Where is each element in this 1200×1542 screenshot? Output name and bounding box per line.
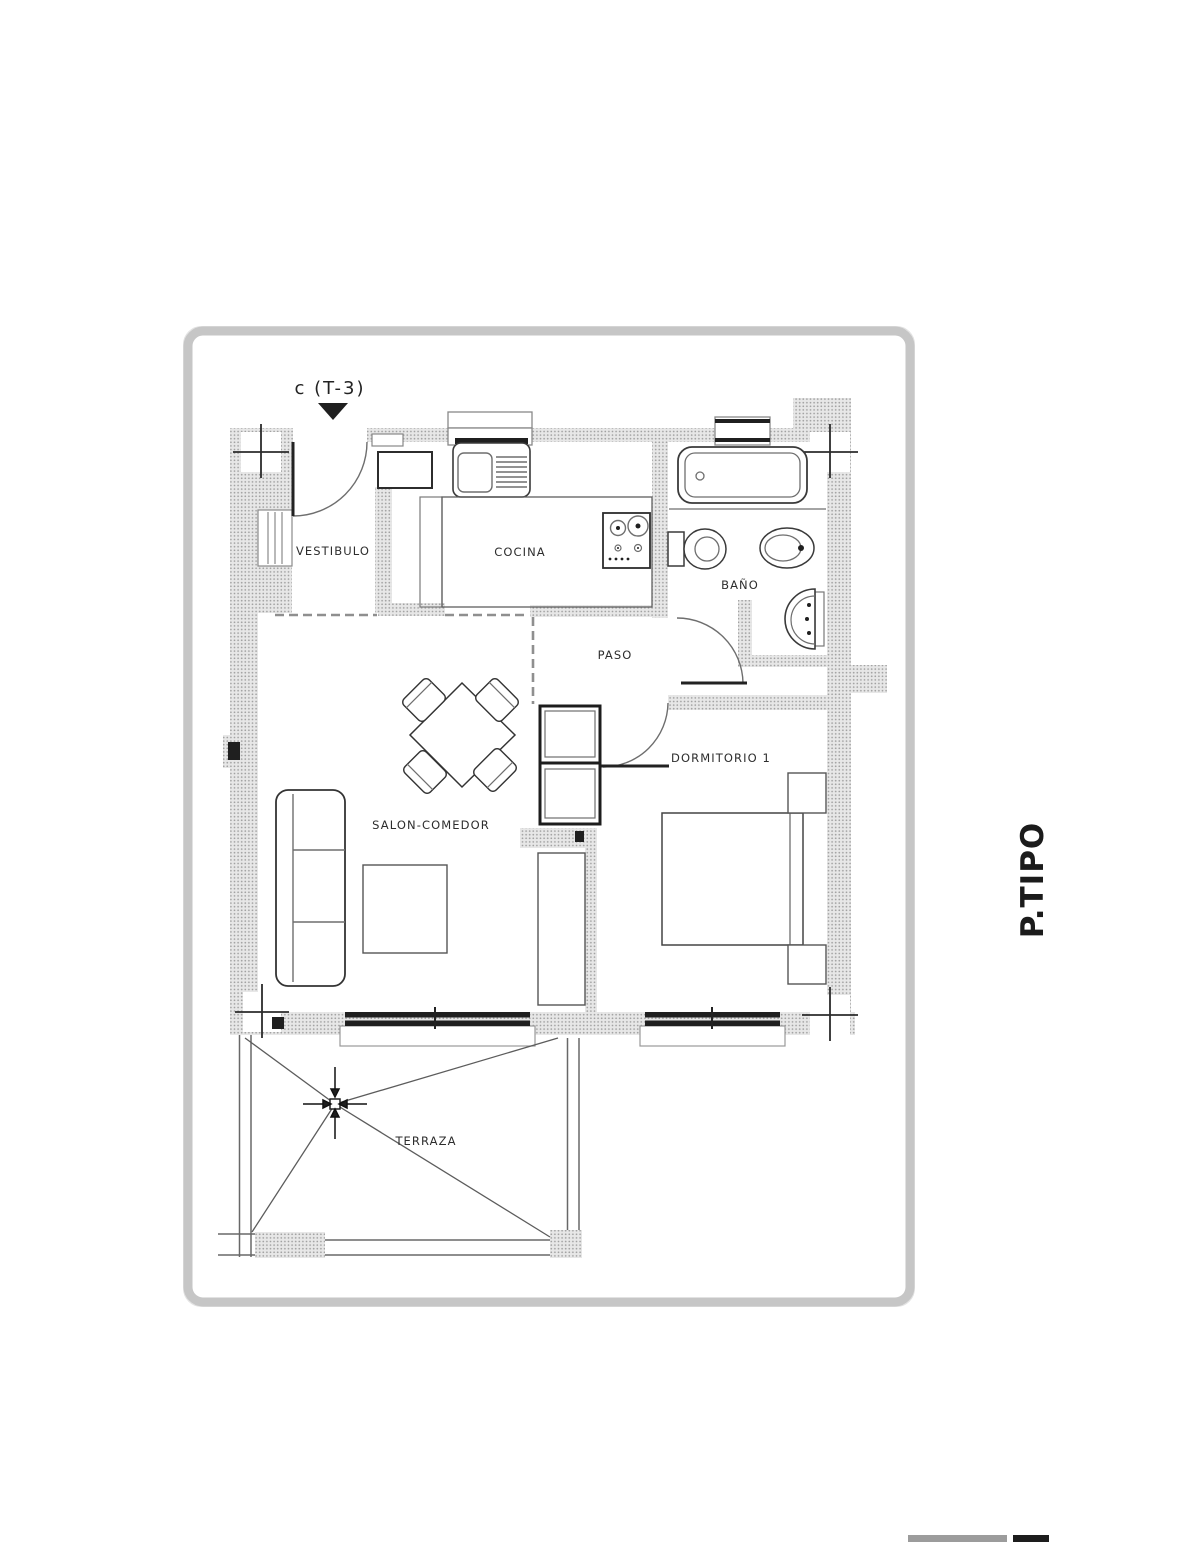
room-label-cocina: COCINA (494, 545, 546, 559)
bed (662, 813, 803, 945)
toilet (668, 529, 726, 569)
nightstand (788, 945, 826, 984)
bathtub (678, 447, 807, 503)
room-label-terraza: TERRAZA (394, 1134, 456, 1148)
pillar-marker (235, 984, 289, 1038)
floorplan-drawing: c (T-3) VESTIBULO COCINA BAÑO PASO SALON… (183, 326, 915, 1307)
room-label-bano: BAÑO (721, 577, 759, 592)
wall-marker (575, 831, 584, 842)
entrance-label: c (T-3) (295, 378, 366, 399)
wardrobe (540, 706, 600, 824)
page: c (T-3) VESTIBULO COCINA BAÑO PASO SALON… (0, 0, 1200, 1542)
coffee-table (363, 865, 447, 953)
pillar-marker (802, 424, 858, 478)
footer-bar-black (1013, 1535, 1049, 1542)
door-sill (372, 434, 403, 446)
room-label-paso: PASO (598, 648, 633, 662)
sideboard (538, 853, 585, 1005)
terrace-pillar (550, 1230, 582, 1258)
nightstand (788, 773, 826, 813)
room-label-dormitorio: DORMITORIO 1 (671, 751, 771, 765)
plan-type-label: P.TIPO (1015, 822, 1051, 939)
hob (603, 513, 650, 568)
wall-marker (272, 1017, 284, 1029)
footer-bar-gray (908, 1535, 1007, 1542)
kitchen-window (448, 412, 532, 445)
room-label-salon: SALON-COMEDOR (372, 818, 490, 832)
sofa (276, 790, 345, 986)
living-room-window (340, 1007, 535, 1046)
terrace-pillar (255, 1232, 325, 1258)
duct-shaft (258, 510, 292, 566)
pillar-marker (802, 987, 858, 1041)
room-label-vestibulo: VESTIBULO (296, 544, 370, 558)
wall-marker (228, 742, 240, 760)
bath-window (715, 417, 770, 445)
kitchen-counter (453, 443, 530, 497)
bidet (760, 528, 814, 568)
pillar-marker (233, 424, 289, 478)
bedroom-window (640, 1007, 785, 1046)
hall-cabinet (378, 452, 432, 488)
entrance-opening (293, 427, 367, 443)
